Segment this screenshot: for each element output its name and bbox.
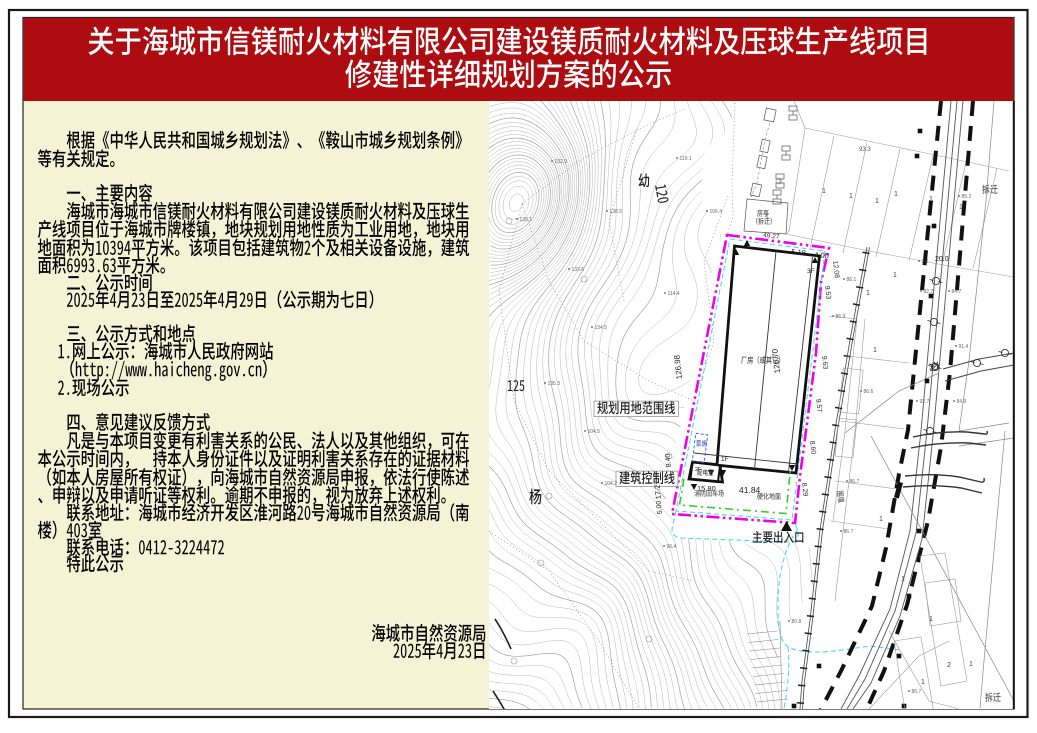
svg-text:91.4: 91.4	[959, 344, 969, 350]
svg-text:2.4: 2.4	[922, 259, 929, 265]
svg-text:1: 1	[921, 679, 925, 686]
svg-text:132.9: 132.9	[555, 159, 568, 165]
svg-text:1: 1	[929, 196, 933, 203]
svg-text:8.40: 8.40	[665, 453, 673, 467]
svg-text:85.2: 85.2	[962, 194, 972, 200]
svg-text:5.00: 5.00	[656, 500, 664, 514]
svg-text:20.0: 20.0	[935, 256, 949, 263]
svg-text:1: 1	[849, 193, 853, 200]
svg-text:1: 1	[893, 272, 897, 279]
svg-text:134.5: 134.5	[595, 325, 608, 331]
svg-text:86.7: 86.7	[850, 479, 860, 485]
svg-text:135.3: 135.3	[548, 381, 561, 387]
svg-text:1: 1	[894, 191, 898, 198]
svg-text:114.4: 114.4	[668, 291, 680, 297]
svg-text:104.2: 104.2	[605, 481, 618, 487]
svg-text:84.7: 84.7	[952, 289, 962, 295]
svg-text:86.6: 86.6	[864, 389, 874, 395]
svg-text:1: 1	[901, 576, 905, 583]
svg-text:82.7: 82.7	[924, 289, 934, 295]
svg-text:1: 1	[959, 204, 963, 211]
svg-text:119.1: 119.1	[680, 156, 692, 162]
svg-text:86.7: 86.7	[912, 689, 922, 695]
svg-text:86.1: 86.1	[847, 277, 857, 283]
svg-text:1: 1	[969, 661, 973, 668]
svg-text:96.4: 96.4	[667, 544, 677, 550]
svg-text:138.5: 138.5	[610, 209, 623, 215]
svg-text:5.18: 5.18	[791, 247, 806, 257]
svg-text:15.80: 15.80	[697, 484, 716, 493]
svg-text:2: 2	[947, 662, 951, 669]
svg-text:104.5: 104.5	[588, 429, 601, 435]
svg-text:92.7: 92.7	[920, 399, 930, 405]
svg-text:86.7: 86.7	[844, 529, 854, 535]
svg-text:86.9: 86.9	[836, 314, 846, 320]
svg-text:1: 1	[879, 516, 883, 523]
svg-text:4.00: 4.00	[814, 250, 829, 260]
svg-text:1: 1	[929, 616, 933, 623]
svg-text:80.8: 80.8	[792, 619, 802, 625]
svg-text:1F: 1F	[721, 456, 729, 463]
svg-text:1: 1	[866, 290, 870, 297]
svg-text:1: 1	[873, 347, 877, 354]
svg-text:3F: 3F	[807, 268, 815, 275]
svg-text:1: 1	[822, 188, 826, 195]
svg-text:139.1: 139.1	[520, 217, 533, 223]
svg-text:133.6: 133.6	[572, 267, 585, 273]
svg-text:106.4: 106.4	[710, 209, 723, 215]
svg-text:1: 1	[875, 198, 879, 205]
svg-text:93.3: 93.3	[859, 147, 871, 153]
svg-text:1: 1	[765, 214, 769, 221]
svg-text:84.9: 84.9	[957, 399, 967, 405]
